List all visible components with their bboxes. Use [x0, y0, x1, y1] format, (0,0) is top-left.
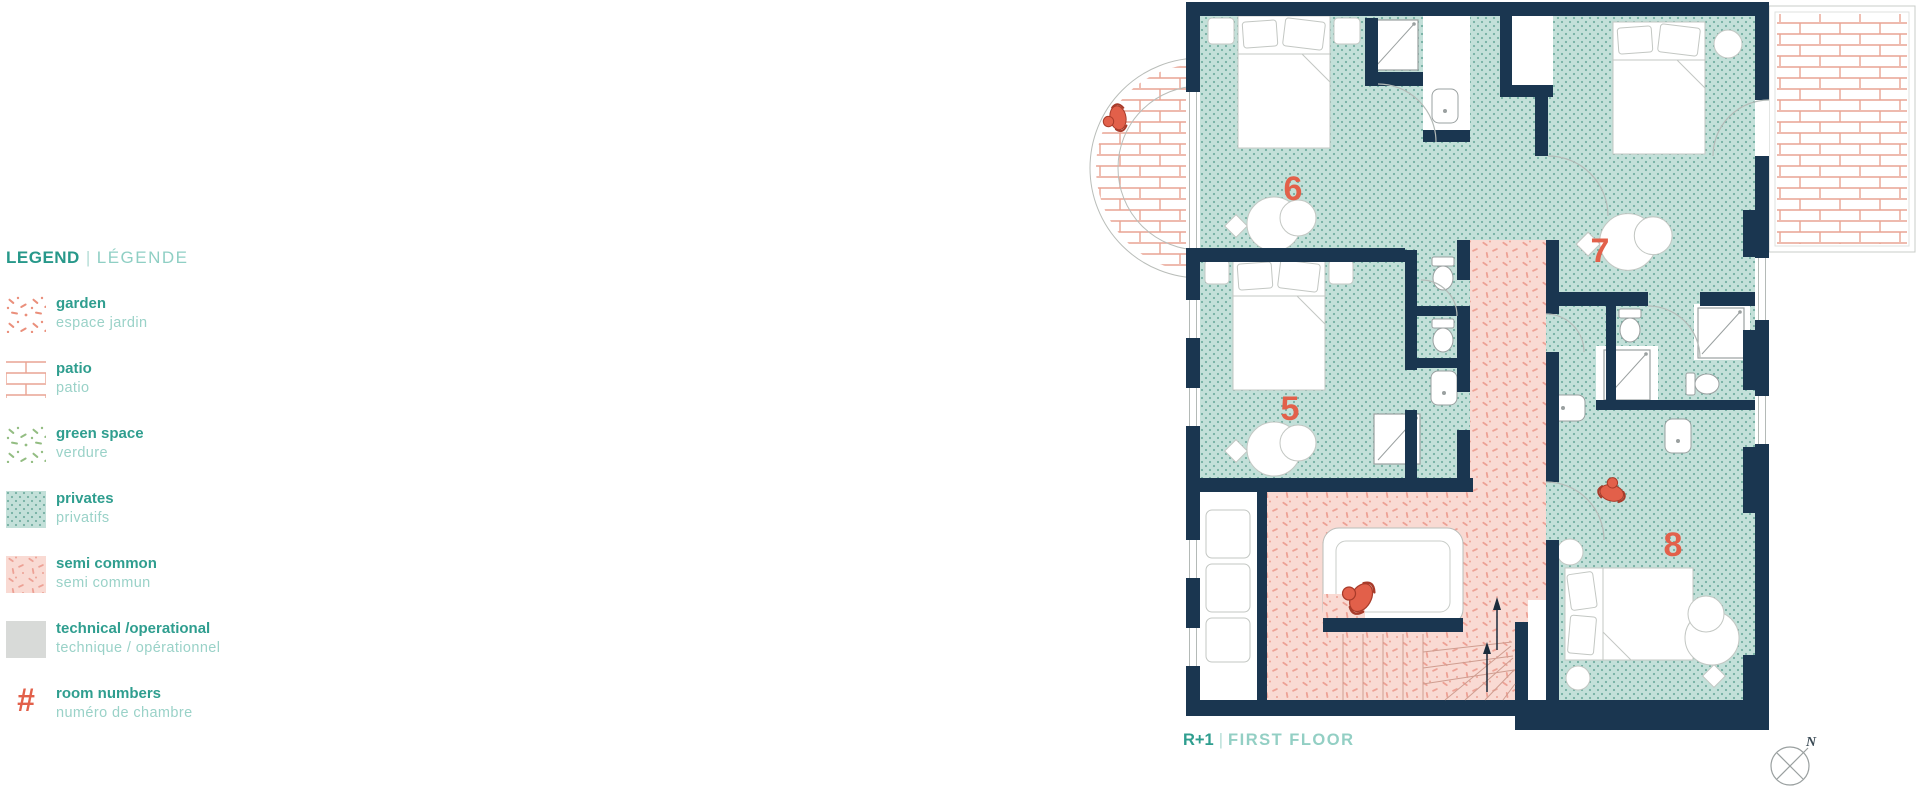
room-number-6: 6 — [1284, 170, 1303, 208]
legend-sublabel-patio: patio — [56, 379, 92, 399]
hash-symbol-icon: # — [6, 682, 46, 719]
technical-gray-icon — [6, 621, 46, 658]
bed-icon — [1613, 22, 1705, 154]
legend-title: LEGEND|LÉGENDE — [6, 248, 286, 268]
legend-sublabel-garden: espace jardin — [56, 314, 147, 334]
patio-brick-icon — [6, 361, 46, 398]
bed-icon — [1565, 568, 1693, 660]
green-space-pattern-icon — [6, 426, 46, 463]
caption-separator: | — [1214, 731, 1228, 749]
toilet-icon — [1619, 309, 1641, 342]
compass-icon: N — [1771, 735, 1817, 785]
sofa-icon — [1323, 528, 1463, 625]
bed-icon — [1238, 16, 1330, 148]
legend-item-patio: patio patio — [6, 359, 286, 424]
sink-icon — [1432, 89, 1458, 123]
legend-label-garden: garden — [56, 294, 147, 314]
terrace — [1769, 6, 1915, 252]
legend-panel: LEGEND|LÉGENDE garden espace jardin pati… — [6, 248, 286, 749]
sink-icon — [1665, 419, 1691, 453]
legend-item-technical: technical /operational technique / opéra… — [6, 619, 286, 684]
legend-label-semi-common: semi common — [56, 554, 157, 574]
legend-sublabel-room-numbers: numéro de chambre — [56, 704, 193, 724]
legend-item-semi-common: semi common semi commun — [6, 554, 286, 619]
shower-icon — [1698, 308, 1744, 358]
legend-sublabel-semi-common: semi commun — [56, 574, 157, 594]
plan-caption: R+1|FIRST FLOOR — [1183, 731, 1355, 750]
floor-plan: 5 6 7 8 N — [1060, 0, 1920, 788]
semi-common-pattern-icon — [6, 556, 46, 593]
page: LEGEND|LÉGENDE garden espace jardin pati… — [0, 0, 1920, 788]
toilet-icon — [1432, 257, 1454, 290]
legend-label-privates: privates — [56, 489, 114, 509]
sink-icon — [1431, 371, 1457, 405]
legend-item-privates: privates privatifs — [6, 489, 286, 554]
patio-semicircle — [1090, 58, 1200, 278]
legend-item-room-numbers: # room numbers numéro de chambre — [6, 684, 286, 749]
floor-level-label: R+1 — [1183, 731, 1214, 749]
legend-title-separator: | — [80, 248, 97, 267]
legend-label-room-numbers: room numbers — [56, 684, 193, 704]
legend-item-garden: garden espace jardin — [6, 294, 286, 359]
floor-name-label: FIRST FLOOR — [1228, 731, 1355, 749]
compass-north-label: N — [1805, 735, 1817, 750]
garden-pattern-icon — [6, 296, 46, 333]
legend-sublabel-green-space: verdure — [56, 444, 144, 464]
privates-pattern-icon — [6, 491, 46, 528]
corridor-floor — [1470, 240, 1546, 492]
room-number-8: 8 — [1664, 526, 1683, 564]
shower-icon — [1372, 20, 1418, 70]
toilet-icon — [1686, 373, 1719, 395]
room-number-5: 5 — [1281, 390, 1300, 428]
legend-label-green-space: green space — [56, 424, 144, 444]
technical-equipment — [1206, 510, 1250, 662]
legend-label-technical: technical /operational — [56, 619, 220, 639]
legend-label-patio: patio — [56, 359, 92, 379]
legend-sublabel-technical: technique / opérationnel — [56, 639, 220, 659]
legend-title-fr: LÉGENDE — [97, 248, 189, 267]
legend-title-en: LEGEND — [6, 248, 80, 267]
bed-icon — [1233, 258, 1325, 390]
legend-sublabel-privates: privatifs — [56, 509, 114, 529]
toilet-icon — [1432, 319, 1454, 352]
room-number-7: 7 — [1591, 232, 1610, 270]
legend-item-green-space: green space verdure — [6, 424, 286, 489]
